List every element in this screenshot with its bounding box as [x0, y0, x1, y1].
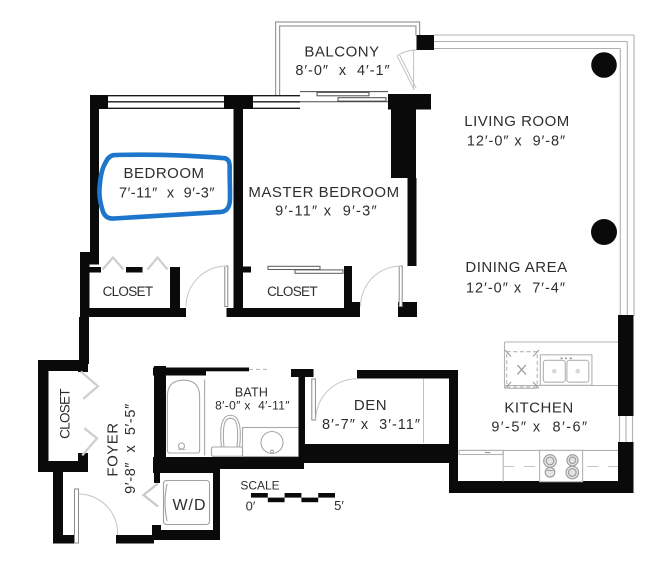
svg-text:DEN: DEN [354, 397, 387, 414]
svg-text:9′-8″ x 5′-5″: 9′-8″ x 5′-5″ [123, 403, 139, 494]
svg-text:CLOSET: CLOSET [267, 284, 317, 299]
svg-text:FOYER: FOYER [105, 422, 122, 476]
svg-text:BALCONY: BALCONY [304, 44, 379, 61]
svg-text:9′-11″ x 9′-3″: 9′-11″ x 9′-3″ [275, 204, 378, 220]
svg-text:DINING AREA: DINING AREA [465, 259, 567, 276]
svg-text:W/D: W/D [172, 497, 206, 514]
svg-text:12′-0″ x 9′-8″: 12′-0″ x 9′-8″ [467, 134, 566, 150]
svg-text:8′-0″ x 4′-1″: 8′-0″ x 4′-1″ [295, 63, 390, 79]
svg-text:0′: 0′ [246, 499, 256, 514]
svg-text:9′-5″ x 8′-6″: 9′-5″ x 8′-6″ [491, 420, 588, 436]
svg-text:CLOSET: CLOSET [103, 284, 153, 299]
svg-text:LIVING ROOM: LIVING ROOM [464, 113, 570, 130]
svg-text:5′: 5′ [334, 498, 344, 513]
svg-text:BEDROOM: BEDROOM [123, 165, 204, 182]
svg-text:KITCHEN: KITCHEN [504, 400, 573, 417]
svg-text:SCALE: SCALE [240, 479, 279, 493]
svg-text:MASTER BEDROOM: MASTER BEDROOM [248, 184, 399, 201]
svg-text:7′-11″ x 9′-3″: 7′-11″ x 9′-3″ [119, 186, 215, 202]
svg-text:BATH: BATH [235, 386, 268, 400]
svg-text:CLOSET: CLOSET [58, 389, 73, 439]
svg-text:8′-0″ x 4′-11″: 8′-0″ x 4′-11″ [215, 399, 290, 413]
svg-text:8′-7″ x 3′-11″: 8′-7″ x 3′-11″ [322, 417, 421, 433]
svg-text:12′-0″ x 7′-4″: 12′-0″ x 7′-4″ [466, 281, 566, 297]
